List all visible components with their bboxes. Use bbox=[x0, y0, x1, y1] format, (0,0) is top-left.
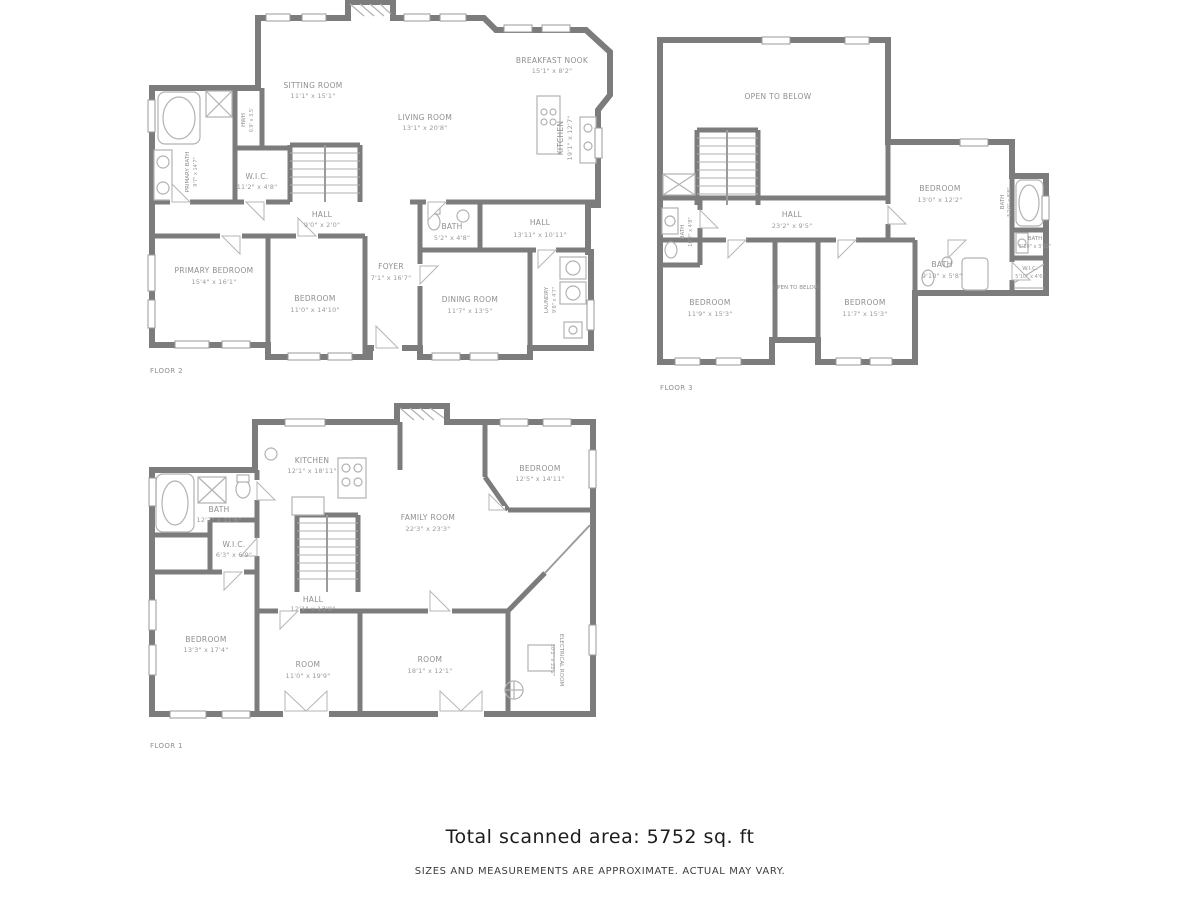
room-dims-bedroom-f2: 11'0" x 14'10" bbox=[290, 306, 339, 314]
room-dims-bedroom-mid: 11'7" x 15'3" bbox=[843, 310, 888, 318]
room-dims-foyer: 7'1" x 16'7" bbox=[371, 274, 412, 282]
room-label-bath-tub: BATH bbox=[1000, 195, 1006, 210]
floor2-double-vanity bbox=[154, 150, 172, 200]
floor2-label: FLOOR 2 bbox=[150, 367, 183, 375]
room-label-living: LIVING ROOM bbox=[398, 113, 452, 122]
room-dims-electrical: 10'2" x 22'2" bbox=[549, 644, 555, 677]
room-dims-primary-bath: 9'7" x 14'7" bbox=[193, 157, 199, 186]
room-label-laundry: LAUNDRY bbox=[544, 286, 550, 313]
room-label-bath-f2: BATH bbox=[441, 222, 462, 231]
room-dims-bath-tub: 5'10" x 8'8" bbox=[1007, 187, 1013, 216]
room-dims-bedroom-left-f1: 13'3" x 17'4" bbox=[184, 646, 229, 654]
room-dims-bedroom-top: 12'5" x 14'11" bbox=[515, 475, 564, 483]
room-dims-bath-mid: 9'10" x 5'8" bbox=[922, 272, 963, 280]
floor3-label: FLOOR 3 bbox=[660, 384, 693, 392]
floor-1-plan: KITCHEN 12'1" x 18'11" BEDROOM 12'5" x 1… bbox=[149, 406, 596, 750]
room-label-dining: DINING ROOM bbox=[442, 295, 498, 304]
room-label-bedroom-top: BEDROOM bbox=[519, 464, 560, 473]
room-dims-primary-bedroom: 15'4" x 16'1" bbox=[192, 278, 237, 286]
room-dims-living: 13'1" x 20'8" bbox=[403, 124, 448, 132]
floor2-bathtub bbox=[158, 92, 200, 144]
room-label-hall-stairs: HALL bbox=[312, 210, 333, 219]
room-dims-hall-stairs: 9'0" x 2'0" bbox=[304, 221, 340, 229]
room-label-primary-bedroom: PRIMARY BEDROOM bbox=[175, 266, 254, 275]
floor3-linen-closet bbox=[663, 174, 695, 195]
room-dims-bath-f1: 12'2" x 11'6" bbox=[197, 516, 242, 524]
room-dims-family: 22'3" x 23'3" bbox=[406, 525, 451, 533]
room-label-open-mid: OPEN TO BELOW bbox=[773, 285, 820, 291]
total-scanned-area: Total scanned area: 5752 sq. ft bbox=[0, 826, 1200, 848]
room-dims-kitchen-f2: 19'1" x 12'7" bbox=[566, 116, 574, 161]
room-label-room-left: ROOM bbox=[296, 660, 321, 669]
floor2-shower bbox=[206, 91, 232, 117]
room-label-wic-f2: W.I.C. bbox=[246, 172, 269, 181]
floorplan-page: SITTING ROOM 11'1" x 15'1" LIVING ROOM 1… bbox=[0, 0, 1200, 900]
room-label-bedroom-f2: BEDROOM bbox=[294, 294, 335, 303]
room-label-bath-left: BATH bbox=[680, 225, 686, 240]
room-label-kitchen-f1: KITCHEN bbox=[295, 456, 330, 465]
floor1-stove bbox=[338, 458, 366, 498]
room-label-primary-bath: PRIMARY BATH bbox=[185, 152, 191, 192]
room-dims-bedroom-right: 13'0" x 12'2" bbox=[918, 196, 963, 204]
floorplan-drawing: SITTING ROOM 11'1" x 15'1" LIVING ROOM 1… bbox=[0, 0, 1200, 900]
room-dims-hall-f1: 12'1" x 13'8" bbox=[291, 605, 336, 613]
room-label-bath-small: BATH bbox=[1028, 236, 1043, 242]
room-dims-laundry: 9'8" x 4'7" bbox=[552, 287, 558, 313]
room-label-hall-f3: HALL bbox=[782, 210, 803, 219]
floor1-kitchen-island bbox=[292, 497, 324, 515]
room-dims-nook: 15'1" x 8'2" bbox=[532, 67, 573, 75]
room-dims-sitting: 11'1" x 15'1" bbox=[291, 92, 336, 100]
room-label-bedroom-mid: BEDROOM bbox=[844, 298, 885, 307]
room-label-room-right: ROOM bbox=[418, 655, 443, 664]
floor1-toilet bbox=[236, 475, 250, 498]
room-label-foyer: FOYER bbox=[378, 262, 404, 271]
room-label-hall-f2: HALL bbox=[530, 218, 551, 227]
floor1-bathtub bbox=[156, 474, 194, 532]
floor1-label: FLOOR 1 bbox=[150, 742, 183, 750]
room-label-bedroom-right: BEDROOM bbox=[919, 184, 960, 193]
room-label-wic-f1: W.I.C. bbox=[223, 540, 246, 549]
room-dims-bath-f2: 5'2" x 4'8" bbox=[434, 234, 470, 242]
room-dims-wic-f3: 5'10" x 4'6" bbox=[1015, 274, 1044, 280]
room-dims-wic-f2: 11'2" x 4'8" bbox=[237, 183, 278, 191]
room-label-nook: BREAKFAST NOOK bbox=[516, 56, 589, 65]
measurement-disclaimer: SIZES AND MEASUREMENTS ARE APPROXIMATE. … bbox=[0, 866, 1200, 877]
room-dims-dining: 11'7" x 13'5" bbox=[448, 307, 493, 315]
room-label-wic-f3: W.I.C. bbox=[1022, 266, 1038, 272]
room-label-bath-mid: BATH bbox=[931, 260, 952, 269]
room-dims-room-left: 11'0" x 19'9" bbox=[286, 672, 331, 680]
room-dims-hall-f2: 13'11" x 10'11" bbox=[513, 231, 567, 239]
room-dims-bath-left: 10'2" x 4'8" bbox=[688, 217, 694, 246]
room-label-sitting: SITTING ROOM bbox=[283, 81, 342, 90]
room-label-bedroom-left-f1: BEDROOM bbox=[185, 635, 226, 644]
room-label-kitchen-f2: KITCHEN bbox=[556, 121, 565, 156]
room-label-hall-f1: HALL bbox=[303, 595, 324, 604]
floor1-exterior-wall bbox=[152, 406, 593, 714]
room-dims-room-right: 18'1" x 12'1" bbox=[408, 667, 453, 675]
room-label-bath-f1: BATH bbox=[208, 505, 229, 514]
floor-3-plan: OPEN TO BELOW BEDROOM 13'0" x 12'2" HALL… bbox=[660, 37, 1051, 392]
room-label-open-top: OPEN TO BELOW bbox=[744, 92, 811, 101]
room-label-bedroom-left-f3: BEDROOM bbox=[689, 298, 730, 307]
room-dims-bedroom-left-f3: 11'9" x 15'3" bbox=[688, 310, 733, 318]
floor1-shower bbox=[198, 477, 226, 503]
floor1-fan-symbol bbox=[505, 681, 523, 699]
floor2-laundry-machines bbox=[560, 257, 586, 338]
floor-2-plan: SITTING ROOM 11'1" x 15'1" LIVING ROOM 1… bbox=[148, 2, 610, 375]
room-dims-hwh: 0.9' x 3.5' bbox=[249, 108, 255, 133]
room-label-electrical: ELECTRICAL ROOM bbox=[558, 634, 564, 687]
floor2-kitchen-counter bbox=[580, 117, 596, 163]
room-label-family: FAMILY ROOM bbox=[401, 513, 455, 522]
floor1-kitchen-sink bbox=[265, 448, 277, 460]
room-dims-wic-f1: 6'3" x 6'9" bbox=[216, 551, 252, 559]
room-label-hwh: HWH bbox=[241, 113, 247, 127]
room-dims-kitchen-f1: 12'1" x 18'11" bbox=[287, 467, 336, 475]
room-dims-bath-small: 5'10" x 3'10" bbox=[1019, 244, 1052, 250]
room-dims-hall-f3: 23'2" x 9'5" bbox=[772, 222, 813, 230]
